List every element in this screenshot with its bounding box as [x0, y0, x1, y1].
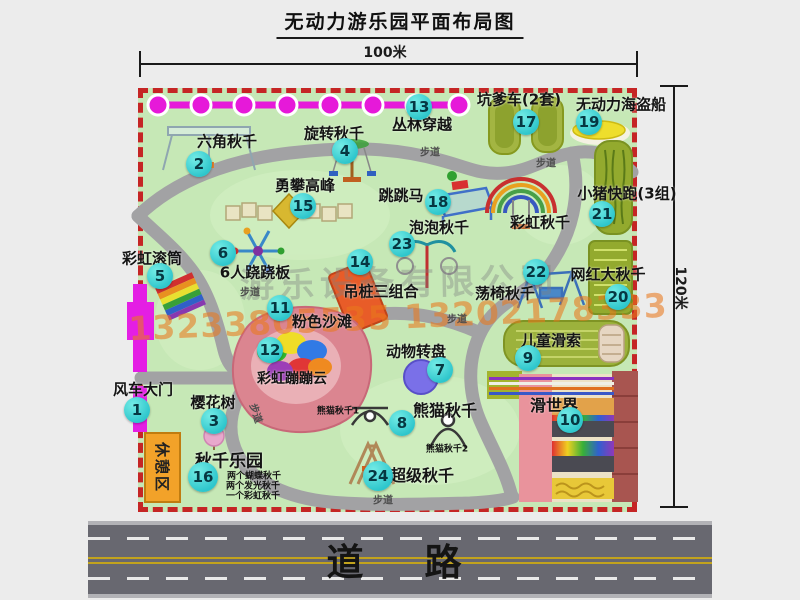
trail-label: 步道: [240, 284, 260, 299]
attraction-label-2: 六角秋千: [197, 131, 257, 152]
panda-note-2: 熊猫秋千2: [426, 442, 468, 455]
dimension-width-label: 100米: [363, 42, 406, 62]
trail-label: 步道: [536, 155, 556, 170]
road: 道 路: [88, 521, 712, 598]
trail-label: 步道: [420, 144, 440, 159]
attraction-label-12: 彩虹蹦蹦云: [257, 368, 327, 388]
attraction-label-20: 网红大秋千: [570, 264, 645, 285]
attraction-badge-18: 18: [425, 189, 451, 215]
attraction-label-8: 熊猫秋千: [413, 397, 477, 421]
attraction-badge-15: 15: [290, 193, 316, 219]
attraction-badge-16: 16: [188, 462, 218, 492]
attraction-label-17: 坑爹车(2套): [477, 89, 561, 110]
attraction-badge-20: 20: [605, 284, 631, 310]
attraction-badge-22: 22: [523, 259, 549, 285]
attraction-badge-14: 14: [347, 249, 373, 275]
attraction-label-23: 泡泡秋千: [409, 217, 469, 238]
dimension-height-label: 120米: [671, 266, 691, 309]
attraction-label-18: 跳跳马: [378, 185, 423, 206]
attraction-badge-13: 13: [406, 94, 432, 120]
dimension-tick-top-right: [636, 51, 638, 77]
attraction-badge-23: 23: [389, 231, 415, 257]
attraction-badge-17: 17: [513, 109, 539, 135]
rest-area-box: 休憩区: [144, 432, 181, 503]
attraction-badge-12: 12: [257, 337, 283, 363]
attraction-badge-5: 5: [147, 263, 173, 289]
dimension-tick-right-bottom: [660, 506, 688, 508]
attraction-badge-7: 7: [427, 357, 453, 383]
attraction-badge-19: 19: [576, 109, 602, 135]
attraction-badge-2: 2: [186, 151, 212, 177]
dimension-line-top: [140, 63, 637, 65]
trail-label: 步道: [447, 311, 467, 326]
park-layout-screenshot: 无动力游乐园平面布局图 100米 120米: [0, 0, 800, 600]
attraction-badge-10: 10: [557, 407, 583, 433]
attraction-label-6: 6人跷跷板: [220, 262, 290, 283]
dimension-tick-right-top: [660, 85, 688, 87]
attraction-label-4: 旋转秋千: [304, 123, 364, 144]
attraction-badge-3: 3: [201, 408, 227, 434]
page-title: 无动力游乐园平面布局图: [276, 7, 523, 39]
attraction-badge-21: 21: [589, 201, 615, 227]
rainbow-swing-label: 彩虹秋千: [510, 212, 570, 233]
attraction-label-11: 粉色沙滩: [292, 311, 352, 332]
attraction-label-24: 超级秋千: [390, 462, 454, 486]
attraction-label-1: 风车大门: [113, 379, 173, 400]
dimension-tick-top-left: [139, 51, 141, 77]
attraction-badge-6: 6: [210, 240, 236, 266]
rest-area-label: 休憩区: [152, 442, 173, 493]
attraction-badge-4: 4: [332, 138, 358, 164]
attraction-badge-11: 11: [267, 295, 293, 321]
attraction-label-21: 小猪快跑(3组): [577, 183, 676, 204]
attraction-badge-8: 8: [389, 410, 415, 436]
attraction-badge-1: 1: [124, 397, 150, 423]
trail-label: 步道: [373, 492, 393, 507]
attraction-label-14: 吊桩三组合: [343, 281, 418, 302]
attraction-label-22: 荡椅秋千: [475, 283, 535, 304]
swing-park-note-3: 一个彩虹秋千: [226, 489, 280, 502]
panda-note-1: 熊猫秋千1: [317, 404, 359, 417]
attraction-badge-24: 24: [363, 461, 393, 491]
attraction-badge-9: 9: [515, 345, 541, 371]
road-label: 道 路: [327, 531, 474, 585]
